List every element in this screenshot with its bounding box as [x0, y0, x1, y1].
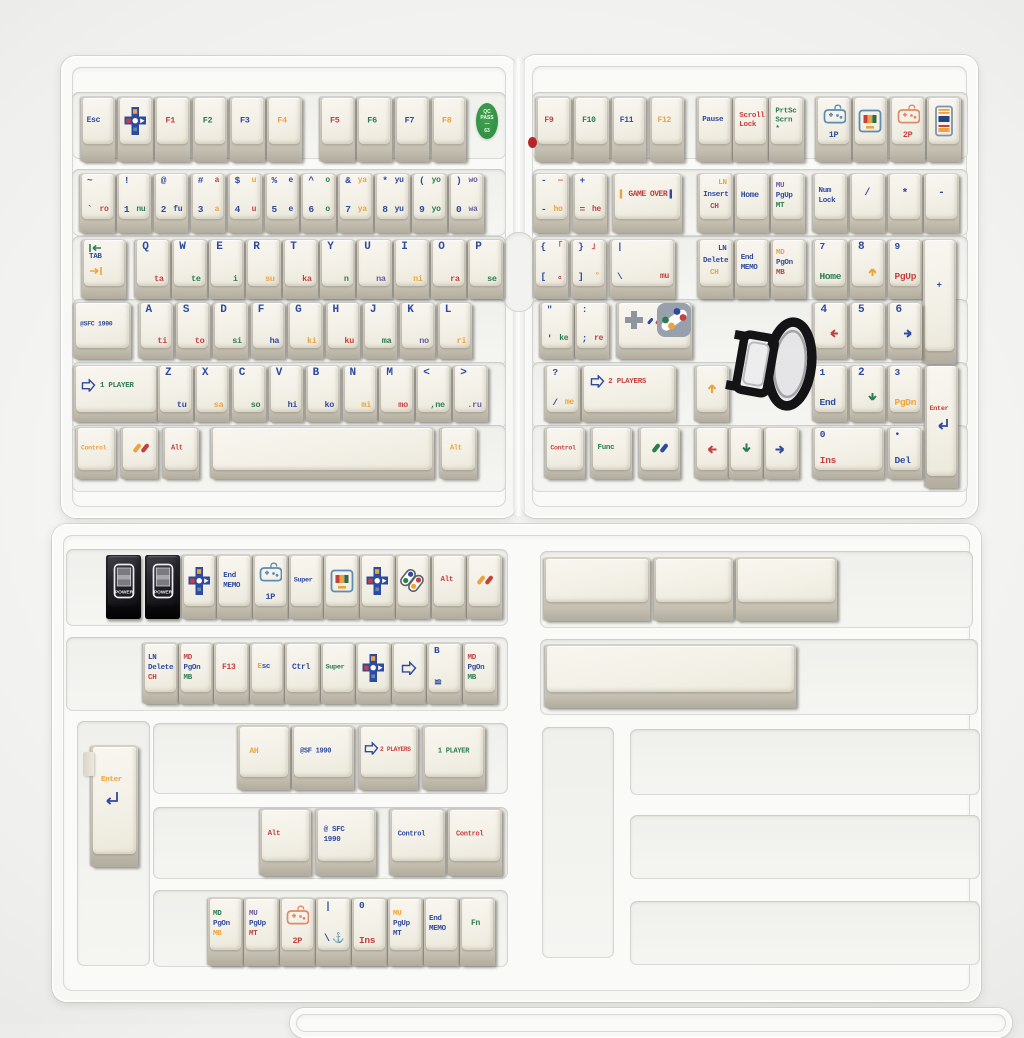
svg-text:POWER: POWER	[154, 590, 173, 596]
svg-text:POWER: POWER	[115, 590, 134, 596]
